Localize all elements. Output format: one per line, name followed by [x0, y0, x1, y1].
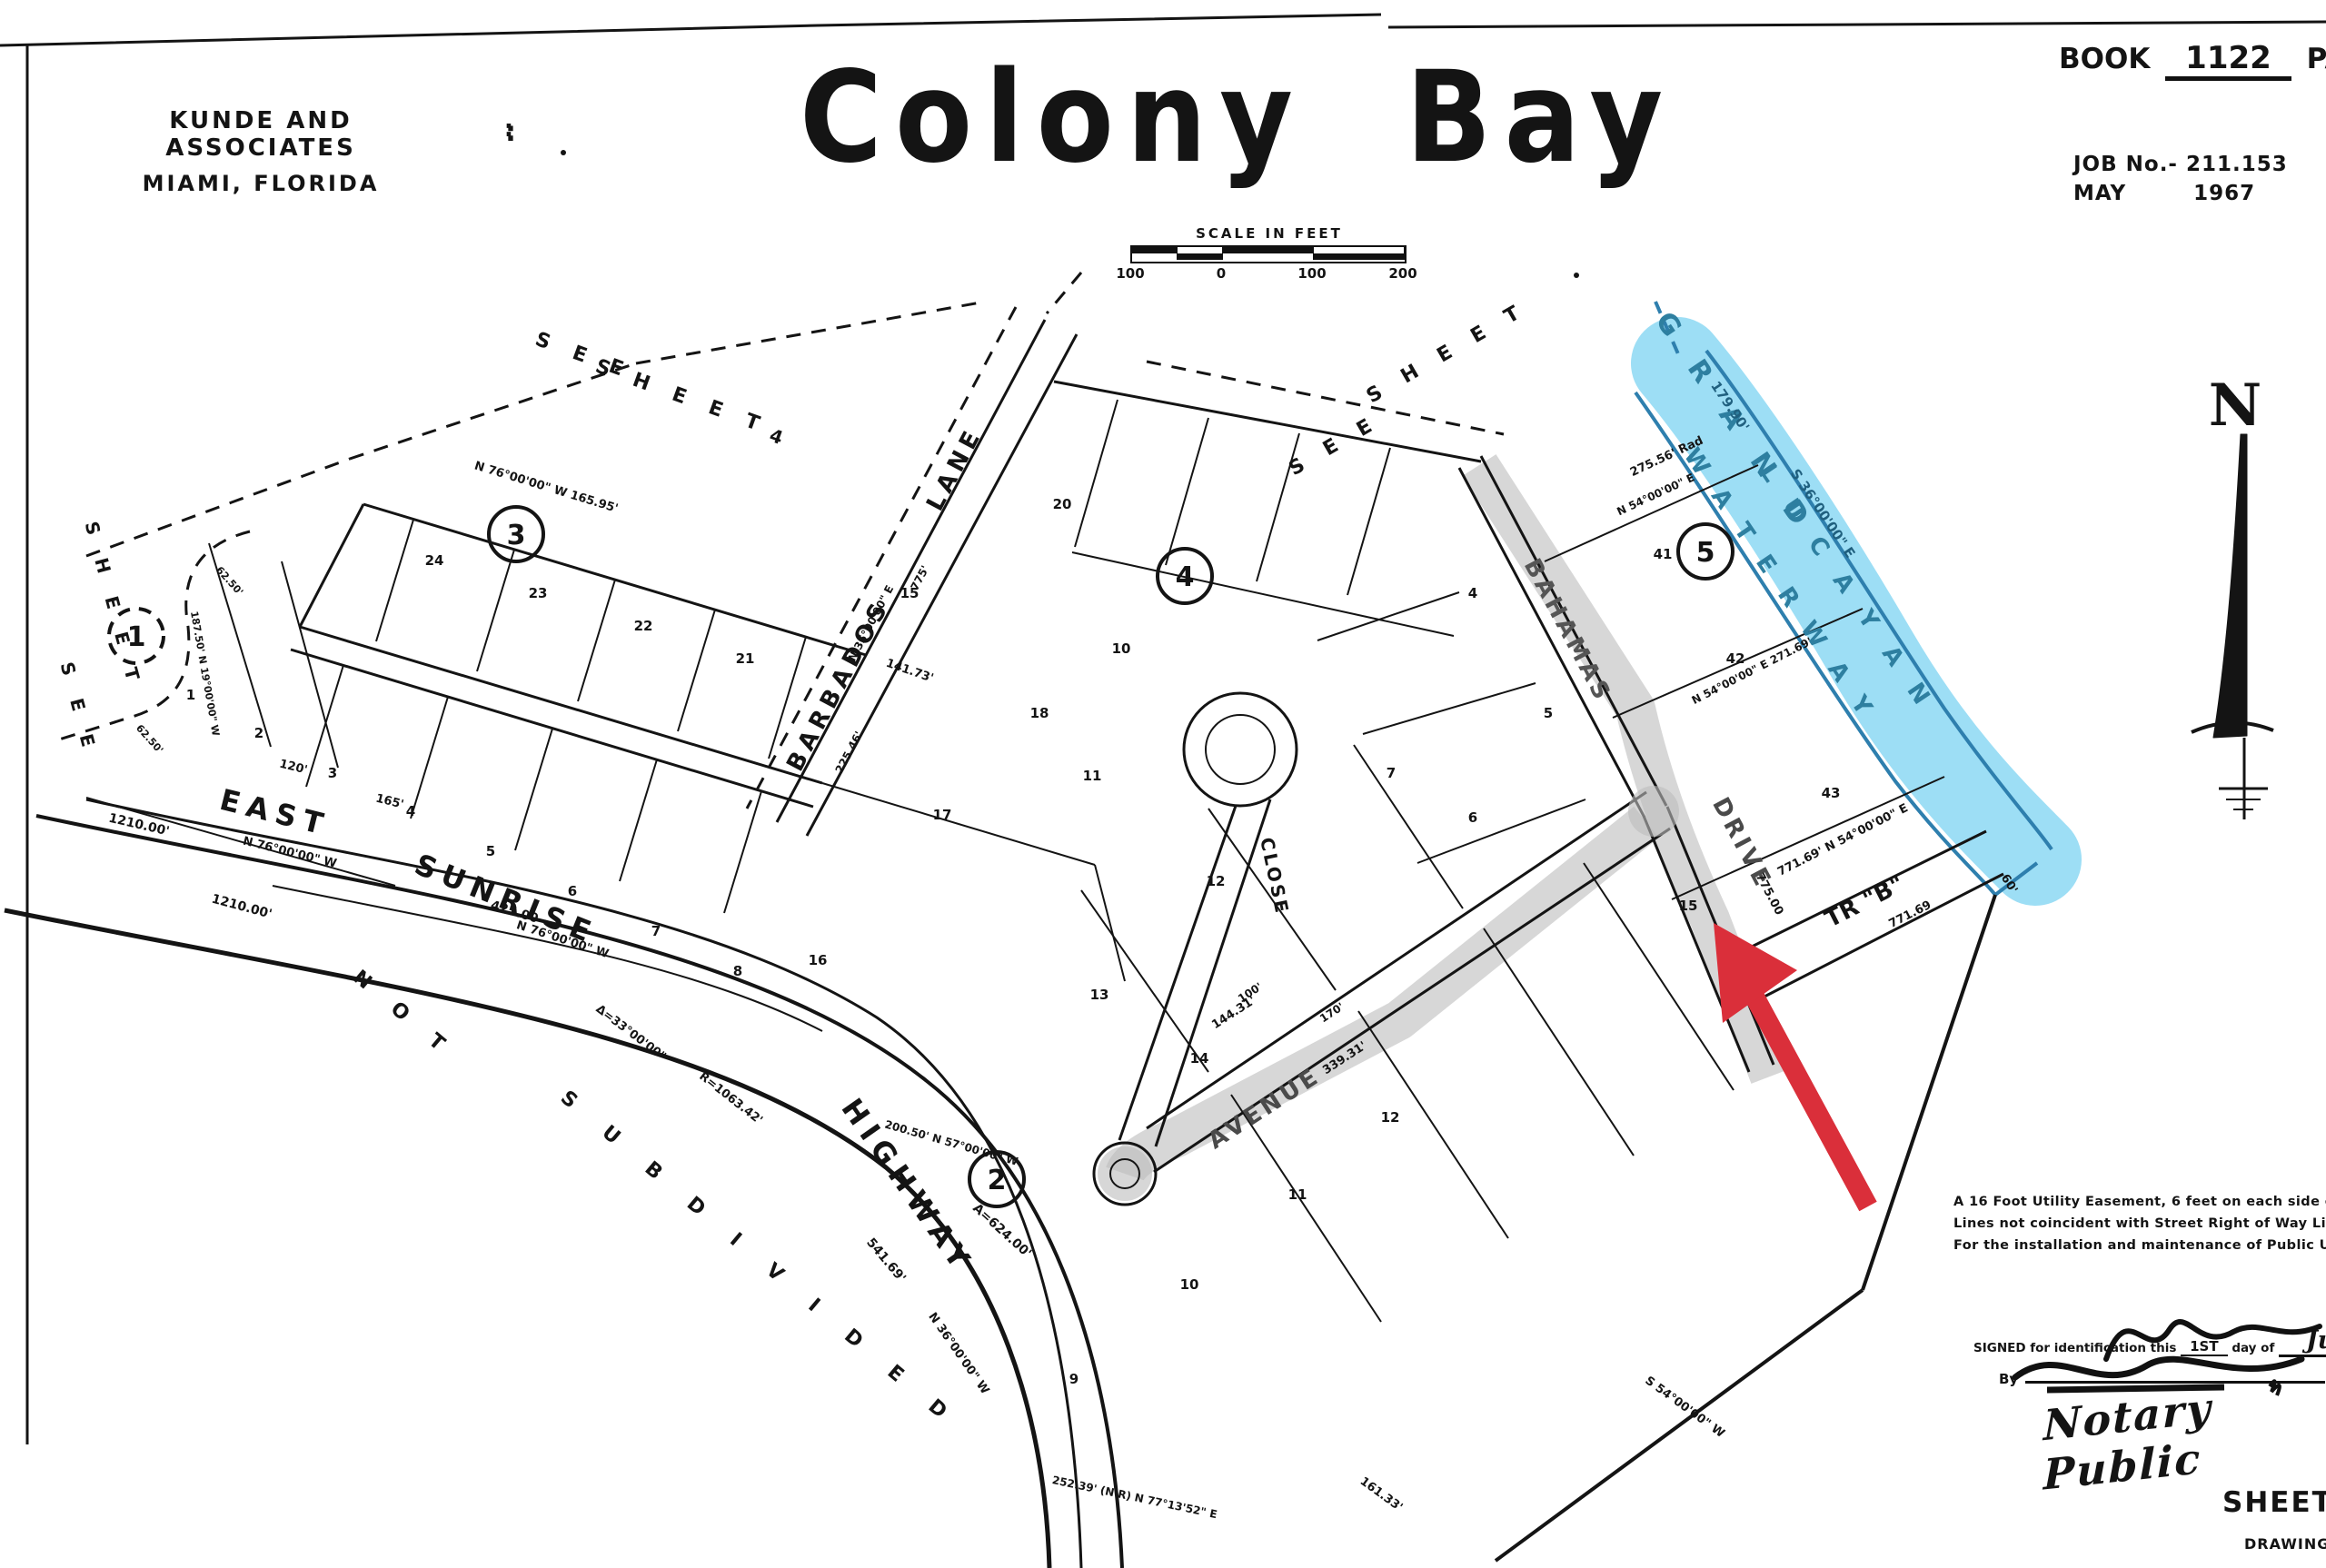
scale-tick-1: 0 — [1217, 265, 1226, 282]
scale-bar-graphic — [1130, 245, 1407, 263]
easement-line-2: Lines not coincident with Street Right o… — [1953, 1214, 2326, 1236]
title-colon-mark: : — [505, 116, 516, 148]
svg-text:7: 7 — [1387, 765, 1396, 781]
surveyor-firm: KUNDE AND ASSOCIATES MIAMI, FLORIDA — [102, 107, 420, 196]
svg-text:141.73': 141.73' — [884, 657, 935, 686]
book-number: 1122 — [2165, 40, 2291, 81]
firm-name: KUNDE AND ASSOCIATES — [102, 107, 420, 162]
utility-easement-note: A 16 Foot Utility Easement, 6 feet on ea… — [1953, 1192, 2326, 1257]
svg-text:24: 24 — [425, 552, 444, 569]
svg-text:541.69': 541.69' — [863, 1236, 909, 1285]
job-header: JOB No.- 211.153 MAY 1967 — [2073, 153, 2288, 205]
svg-text:1210.00': 1210.00' — [210, 892, 273, 922]
easement-line-3: For the installation and maintenance of … — [1953, 1236, 2326, 1257]
book-page-header: BOOK 1122 PAGE — [2059, 40, 2326, 81]
svg-text:41: 41 — [1654, 546, 1673, 562]
svg-text:A=624.00': A=624.00' — [969, 1201, 1034, 1261]
svg-text:S 54°00'00" W: S 54°00'00" W — [1642, 1374, 1726, 1440]
svg-text:42: 42 — [1726, 650, 1745, 667]
svg-text:165': 165' — [374, 792, 405, 812]
scale-tick-0: 100 — [1116, 265, 1144, 282]
page-title: ColonyBay — [800, 45, 1654, 191]
job-month: MAY — [2073, 182, 2126, 205]
svg-text:144.31': 144.31' — [1209, 994, 1258, 1032]
book-label: BOOK — [2059, 43, 2150, 75]
svg-text:62.50': 62.50' — [214, 564, 245, 598]
svg-text:N O T: N O T — [348, 966, 458, 1064]
scale-tick-2: 100 — [1297, 265, 1326, 282]
svg-text:1: 1 — [186, 687, 195, 703]
svg-text:Δ=33°00'00": Δ=33°00'00" — [593, 1002, 669, 1064]
svg-text:6: 6 — [568, 883, 577, 899]
scale-bar-label: SCALE IN FEET — [1130, 225, 1408, 242]
red-arrow-annotation — [1714, 923, 1868, 1206]
svg-text:4: 4 — [1176, 561, 1195, 593]
svg-text:3: 3 — [507, 520, 526, 551]
svg-text:13: 13 — [1090, 987, 1109, 1003]
sheet-label: SHEET — [2222, 1486, 2326, 1519]
scale-tick-3: 200 — [1388, 265, 1416, 282]
drawing-label: DRAWING — [2244, 1535, 2326, 1553]
svg-text:5: 5 — [1544, 705, 1553, 721]
svg-text:S E E: S E E — [55, 660, 102, 758]
svg-text:17: 17 — [933, 807, 952, 823]
svg-text:120': 120' — [278, 758, 309, 778]
title-word-1: Colony — [800, 45, 1306, 191]
svg-text:252.39' (N R) N 77°13'52" E: 252.39' (N R) N 77°13'52" E — [1051, 1474, 1218, 1521]
svg-text:9: 9 — [1069, 1371, 1079, 1387]
svg-text:2: 2 — [254, 725, 263, 741]
svg-text:4: 4 — [406, 803, 415, 819]
svg-text:23: 23 — [529, 585, 548, 601]
svg-text:11: 11 — [1288, 1186, 1307, 1203]
svg-text:N 76°00'00" W 165.95': N 76°00'00" W 165.95' — [472, 459, 620, 515]
svg-text:HIGHWAY: HIGHWAY — [834, 1092, 980, 1280]
svg-text:6: 6 — [1468, 809, 1477, 826]
scale-bar-ticks: 100 0 100 200 — [1130, 265, 1408, 283]
svg-text:N 54°00'00" E 271.69': N 54°00'00" E 271.69' — [1690, 635, 1814, 707]
svg-text:4: 4 — [1468, 585, 1477, 601]
svg-text:S H E E T: S H E E T — [1363, 298, 1532, 409]
svg-text:187.50' N 19°00'00" W: 187.50' N 19°00'00" W — [188, 610, 222, 737]
svg-text:11: 11 — [1083, 768, 1102, 784]
svg-text:21: 21 — [736, 650, 755, 667]
svg-text:1: 1 — [127, 621, 146, 653]
svg-text:12: 12 — [1207, 873, 1226, 889]
svg-text:5: 5 — [486, 843, 495, 859]
svg-text:20: 20 — [1053, 496, 1072, 512]
svg-text:161.33': 161.33' — [1357, 1474, 1406, 1514]
svg-text:S U B D I V I D E D: S U B D I V I D E D — [556, 1087, 964, 1434]
svg-text:N 36°00'00" W: N 36°00'00" W — [925, 1310, 991, 1396]
svg-text:15: 15 — [1679, 898, 1698, 914]
svg-text:12: 12 — [1381, 1109, 1400, 1126]
firm-city: MIAMI, FLORIDA — [102, 171, 420, 196]
plat-sheet: { "header": { "firm_line1": "KUNDE AND A… — [0, 0, 2326, 1568]
svg-text:14: 14 — [1190, 1050, 1209, 1067]
svg-text:10: 10 — [1112, 640, 1131, 657]
svg-text:18: 18 — [1030, 705, 1049, 721]
easement-line-1: A 16 Foot Utility Easement, 6 feet on ea… — [1953, 1192, 2326, 1214]
svg-text:S E E: S E E — [1285, 411, 1384, 481]
svg-text:LANE: LANE — [921, 422, 989, 516]
svg-text:22: 22 — [634, 618, 653, 634]
job-year: 1967 — [2193, 182, 2255, 205]
svg-text:4: 4 — [767, 424, 786, 449]
svg-text:43: 43 — [1822, 785, 1841, 801]
svg-text:5: 5 — [1696, 537, 1715, 569]
svg-text:8: 8 — [733, 963, 742, 979]
svg-text:15: 15 — [900, 585, 919, 601]
svg-text:62.50': 62.50' — [134, 722, 165, 756]
svg-text:7: 7 — [651, 923, 661, 939]
svg-text:771.69' N 54°00'00" E: 771.69' N 54°00'00" E — [1775, 801, 1910, 879]
block-number-badges: 12345 — [109, 507, 1733, 1206]
svg-text:EAST: EAST — [216, 782, 333, 843]
svg-text:S H E E T: S H E E T — [592, 355, 770, 439]
svg-text:3: 3 — [328, 765, 337, 781]
scale-bar: SCALE IN FEET 100 0 100 200 — [1130, 225, 1408, 283]
page-label: PAGE — [2307, 43, 2326, 75]
svg-text:10: 10 — [1180, 1276, 1199, 1293]
svg-text:CLOSE: CLOSE — [1256, 836, 1294, 918]
svg-text:225.46': 225.46' — [833, 729, 866, 776]
map-labels: EASTSUNRISEHIGHWAYBARBADOSLANEBAHAMASAVE… — [55, 115, 2261, 1521]
title-word-2: Bay — [1406, 45, 1675, 191]
svg-text:2: 2 — [988, 1165, 1007, 1196]
svg-text:16: 16 — [809, 952, 828, 968]
job-number: JOB No.- 211.153 — [2073, 153, 2288, 176]
svg-text:N: N — [2209, 372, 2262, 440]
